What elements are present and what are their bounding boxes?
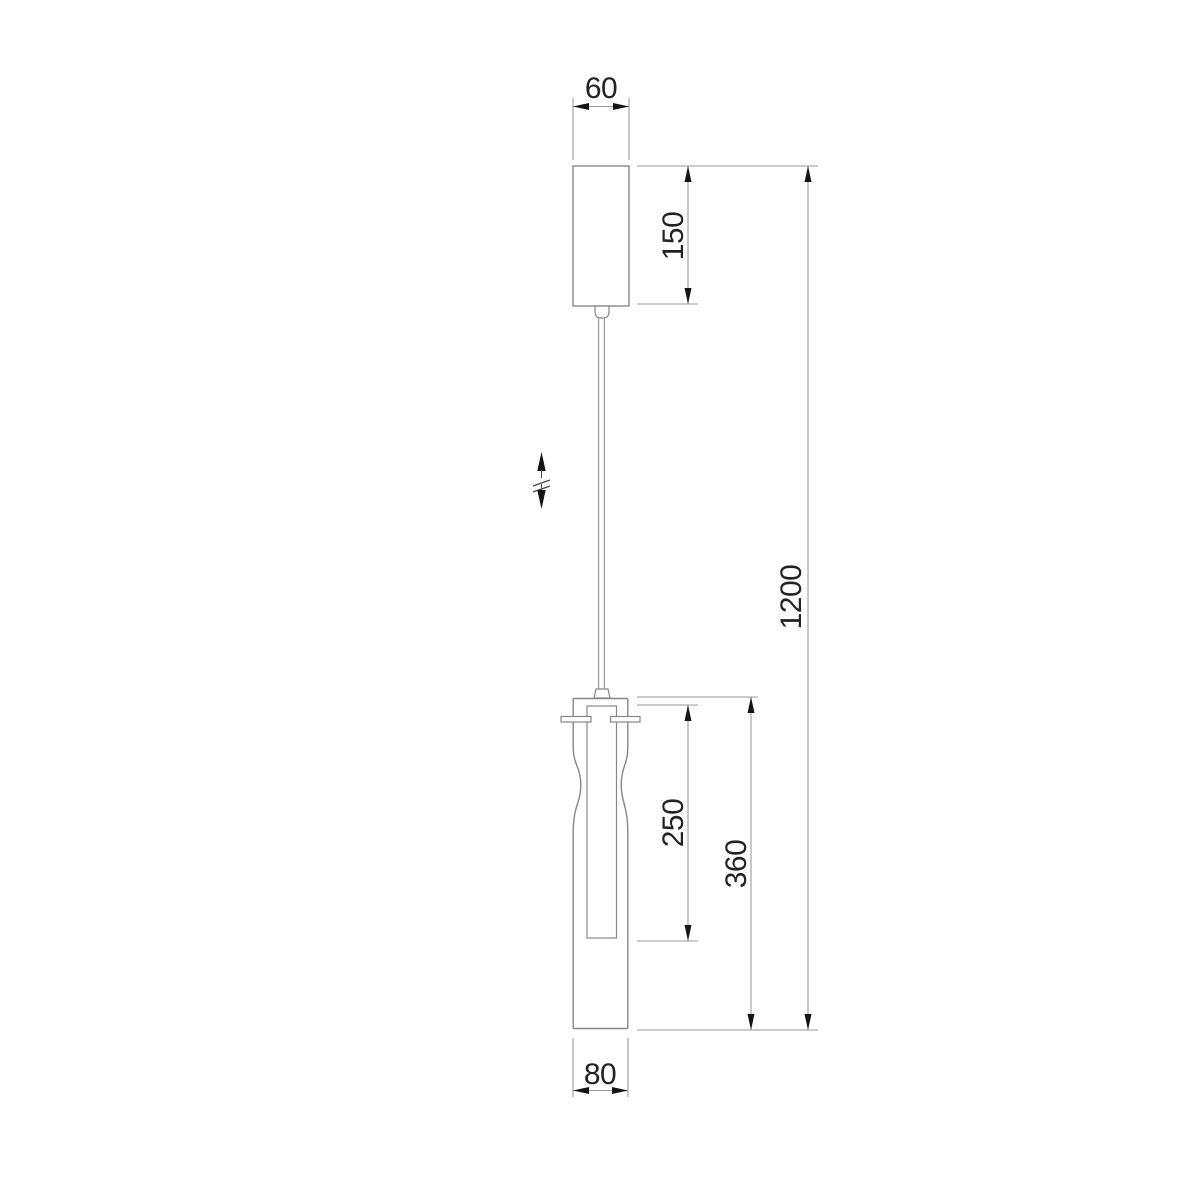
height-adjust-down-arrow [537,490,545,509]
lamp-cable-gland [594,689,610,698]
mounting-pin-left [561,717,591,723]
height-adjust-up-arrow [537,452,545,471]
inner-diffuser-tube [587,706,617,938]
mounting-pin-right [611,717,641,723]
ceiling-canopy [573,166,629,306]
arrowhead-150-bottom [685,288,692,304]
fixture-outline-group [561,166,640,1029]
arrowhead-1200-bottom [805,1014,812,1030]
dim-label-diffuser-height: 250 [657,799,690,848]
arrowhead-360-bottom [748,1014,755,1030]
arrowhead-150-top [685,166,692,182]
dim-label-body-width: 80 [584,1058,616,1091]
arrowhead-360-top [748,697,755,713]
dim-label-canopy-height: 150 [657,212,690,261]
arrowhead-250-bottom [685,925,692,941]
arrowhead-1200-top [805,166,812,182]
drawing-canvas: 60 150 250 360 1200 80 [0,0,1200,1200]
dimension-drawing: 60 150 250 360 1200 80 [0,0,1200,1200]
arrowhead-250-top [685,705,692,721]
dim-label-overall-height: 1200 [775,565,808,630]
height-adjust-indicator [533,452,550,509]
lamp-body-left-profile [573,699,581,1029]
lamp-body-right-profile [621,699,628,1029]
dim-label-canopy-width: 60 [585,72,617,105]
canopy-cable-gland [595,306,609,318]
dim-label-body-height: 360 [720,840,753,889]
